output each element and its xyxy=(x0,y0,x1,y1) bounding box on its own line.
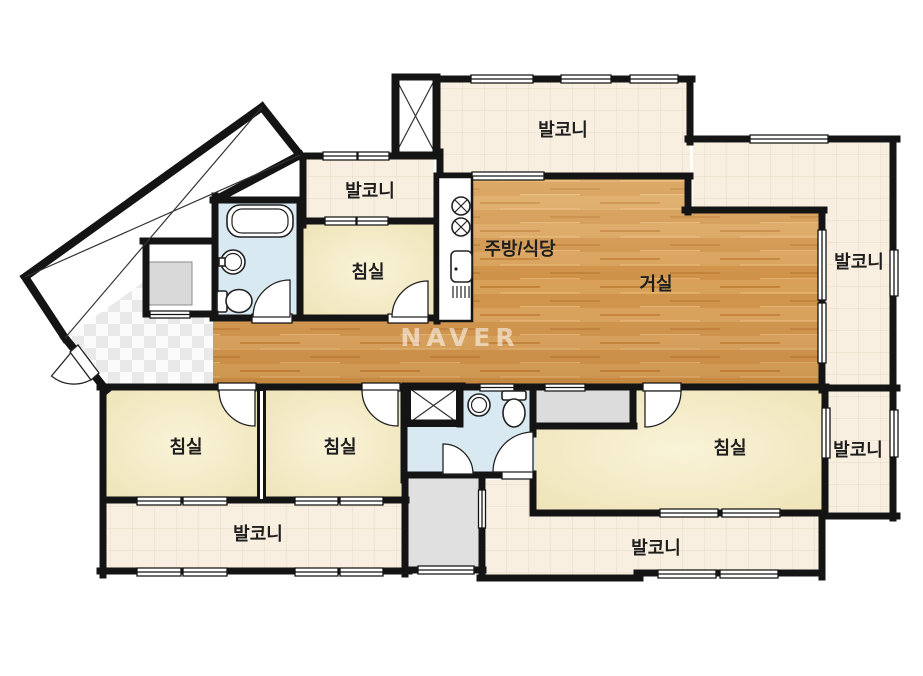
label-balcony-right-lower: 발코니 xyxy=(833,440,883,460)
label-kitchen-dining: 주방/식당 xyxy=(484,239,556,259)
window xyxy=(720,570,778,578)
label-balcony-bottom: 발코니 xyxy=(631,538,681,558)
utility-room-floor xyxy=(407,478,480,569)
sliding-door xyxy=(545,384,585,391)
window xyxy=(630,75,678,83)
kitchen-sink-drain xyxy=(454,267,457,270)
window xyxy=(471,75,533,83)
label-living-room: 거실 xyxy=(639,274,672,294)
window xyxy=(295,497,338,505)
label-balcony-top: 발코니 xyxy=(538,120,588,140)
label-bedroom-middle: 침실 xyxy=(323,437,356,457)
door-threshold xyxy=(643,383,681,391)
label-bedroom-left: 침실 xyxy=(169,437,202,457)
window xyxy=(357,217,388,225)
window xyxy=(340,497,383,505)
label-bedroom-top: 침실 xyxy=(351,262,384,282)
window xyxy=(658,570,716,578)
bedroom-right-closet xyxy=(536,388,631,424)
closet-box xyxy=(148,262,192,305)
window xyxy=(323,152,357,160)
sliding-door xyxy=(150,311,190,318)
floor-plan-page: 발코니 발코니 발코니 발코니 발코니 발코니 주방/식당 거실 침실 침실 침… xyxy=(0,0,923,676)
floor-plan: 발코니 발코니 발코니 발코니 발코니 발코니 주방/식당 거실 침실 침실 침… xyxy=(0,0,923,676)
window xyxy=(722,509,780,517)
bedroom-divider-gap xyxy=(260,391,263,499)
toilet-bowl xyxy=(226,290,252,313)
naver-watermark: NAVER xyxy=(400,323,519,352)
balcony-corridor-floor xyxy=(486,480,531,516)
window xyxy=(137,568,181,576)
window xyxy=(358,152,389,160)
kitchen-sink xyxy=(451,251,472,282)
toilet-bowl xyxy=(503,399,525,427)
window xyxy=(340,568,383,576)
window xyxy=(183,568,227,576)
label-bedroom-right: 침실 xyxy=(713,438,746,458)
label-balcony-small: 발코니 xyxy=(345,181,395,201)
window xyxy=(818,303,826,363)
window xyxy=(472,172,544,180)
window xyxy=(822,408,830,458)
label-balcony-right-upper: 발코니 xyxy=(834,252,884,272)
window xyxy=(561,75,611,83)
window xyxy=(890,250,898,296)
sliding-door xyxy=(479,490,486,528)
label-balcony-bottom-left: 발코니 xyxy=(233,524,283,544)
window xyxy=(325,217,356,225)
sink-tap xyxy=(219,258,225,266)
window xyxy=(295,568,338,576)
window xyxy=(890,410,898,457)
window xyxy=(183,497,227,505)
window xyxy=(750,135,828,143)
window xyxy=(418,566,474,574)
window xyxy=(660,509,718,517)
window xyxy=(137,497,181,505)
sliding-door xyxy=(480,384,514,391)
window xyxy=(818,230,826,300)
